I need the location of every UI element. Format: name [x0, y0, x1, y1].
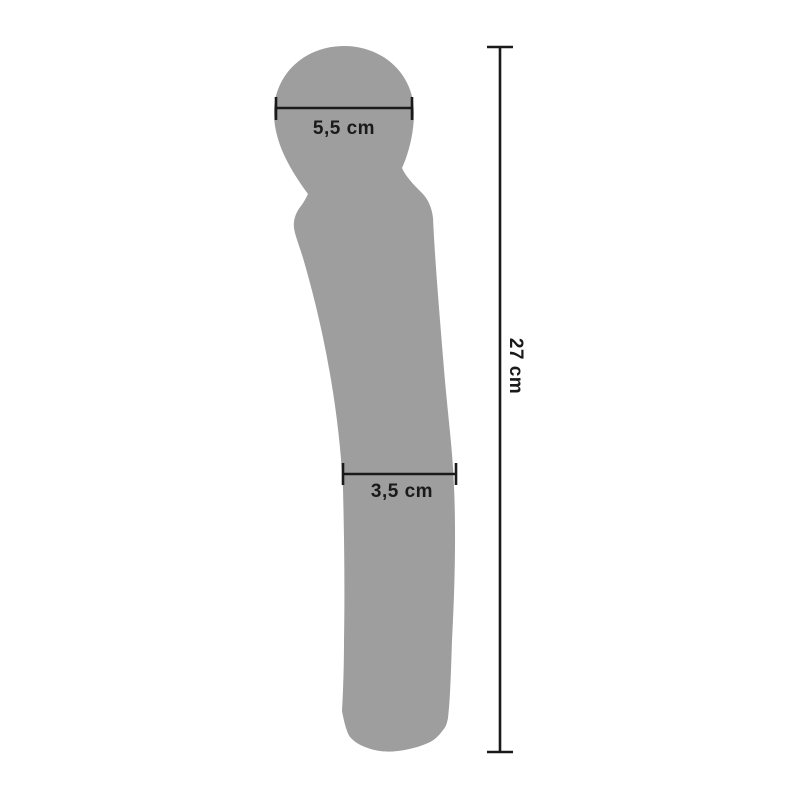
product-silhouette: [274, 46, 455, 752]
total-length-label: 27 cm: [505, 338, 526, 394]
diagram-svg: 5,5 cm 3,5 cm 27 cm: [0, 0, 800, 800]
total-length-dimension: 27 cm: [487, 47, 526, 752]
body-width-label: 3,5 cm: [371, 481, 433, 502]
head-width-label: 5,5 cm: [313, 118, 375, 139]
product-dimension-diagram: 5,5 cm 3,5 cm 27 cm: [0, 0, 800, 800]
